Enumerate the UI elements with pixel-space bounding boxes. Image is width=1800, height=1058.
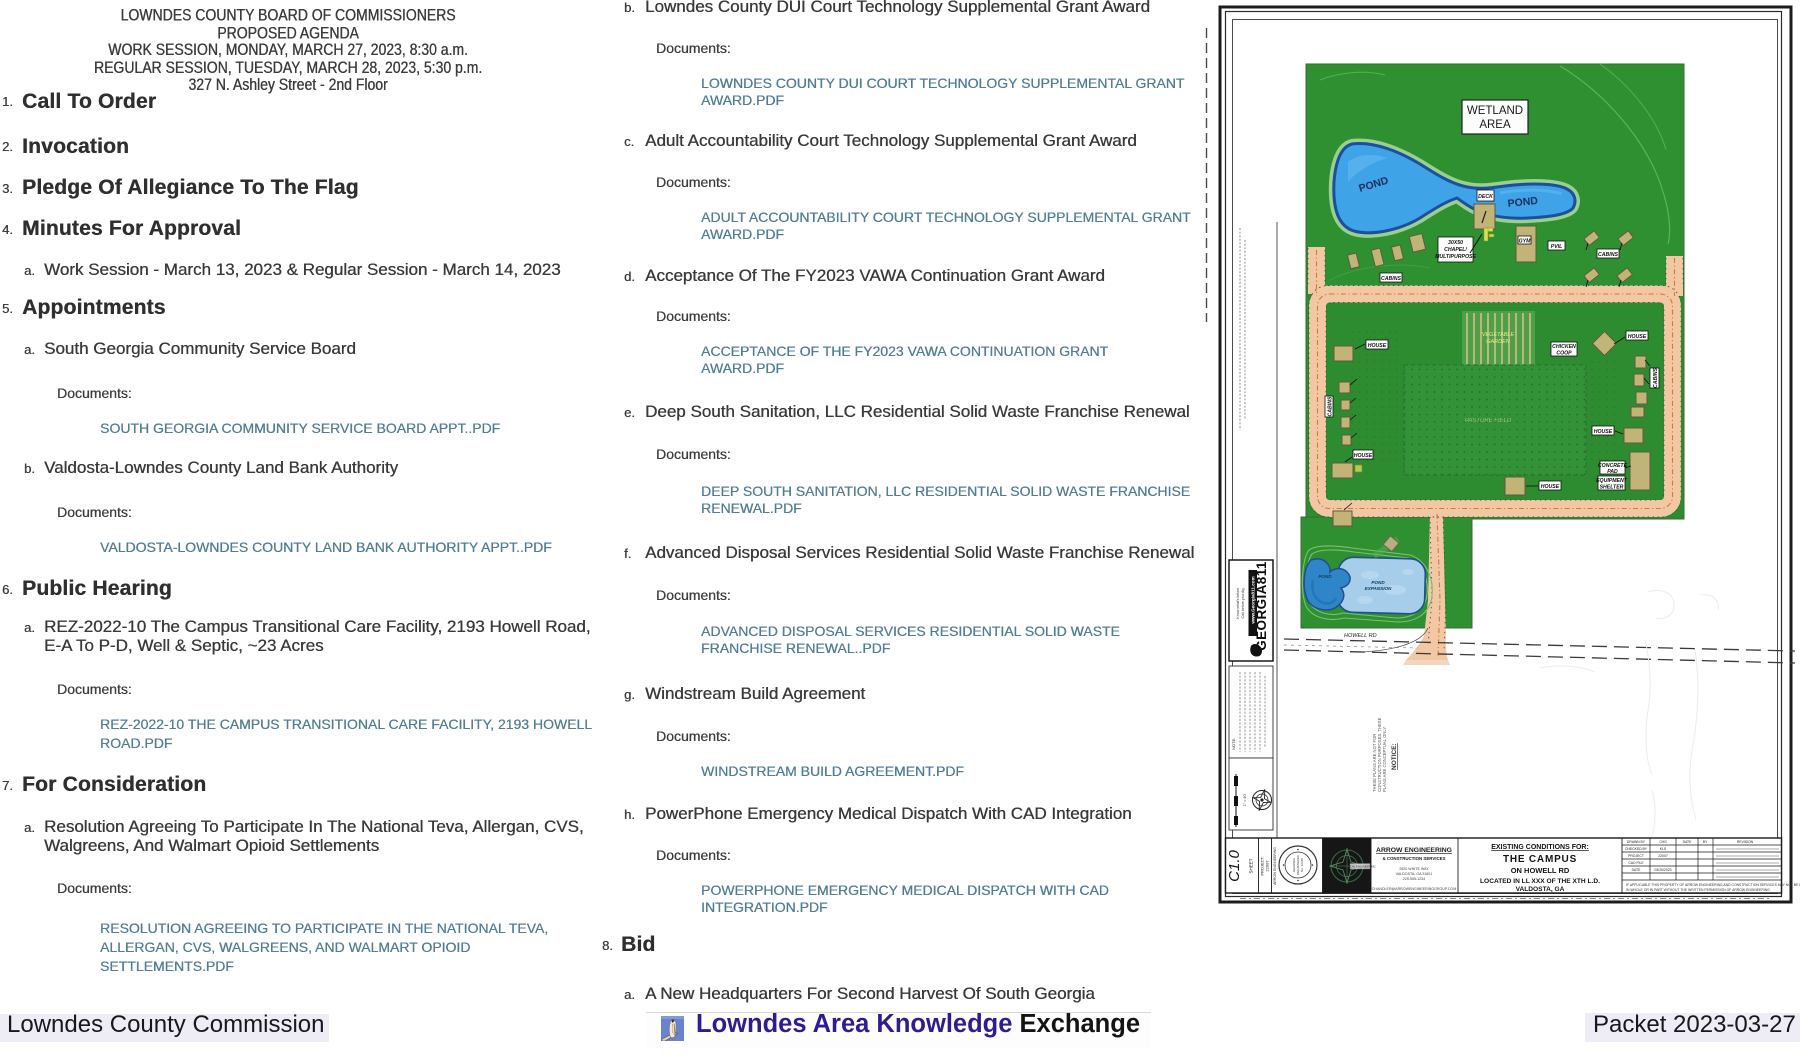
svg-text:THE CAMPUS: THE CAMPUS	[1503, 854, 1577, 865]
svg-text:VALDOSTA, GA 31601: VALDOSTA, GA 31601	[1396, 872, 1433, 876]
svg-text:HOUSE: HOUSE	[1354, 453, 1373, 459]
svg-text:ARROW ENGINEERING: ARROW ENGINEERING	[1273, 847, 1277, 885]
svg-text:VEGETABLE: VEGETABLE	[1482, 332, 1515, 338]
svg-text:22007: 22007	[1658, 854, 1668, 858]
svg-text:CAD FILE: CAD FILE	[1628, 861, 1644, 865]
svg-text:IN WHOLE OR IN PART WITHOUT TH: IN WHOLE OR IN PART WITHOUT THE WRITTEN …	[1626, 888, 1770, 892]
svg-text:EXPANSION: EXPANSION	[1365, 586, 1392, 591]
svg-text:SHELTER: SHELTER	[1600, 485, 1624, 491]
svg-text:CHANDLER@ARROWENGINEERINGGROUP: CHANDLER@ARROWENGINEERINGGROUP.COM	[1372, 887, 1456, 891]
svg-text:www.Georgia811.com: www.Georgia811.com	[1251, 576, 1256, 624]
svg-text:EXISTING CONDITIONS FOR:: EXISTING CONDITIONS FOR:	[1491, 844, 1589, 851]
svg-text:ARROW ENGINEERING: ARROW ENGINEERING	[1376, 847, 1452, 854]
svg-text:AREA: AREA	[1479, 119, 1511, 131]
svg-text:VALDOSTA, GA: VALDOSTA, GA	[1516, 886, 1565, 893]
svg-text:DECK: DECK	[1478, 194, 1494, 200]
svg-text:PAD: PAD	[1607, 469, 1618, 475]
svg-text:WETLAND: WETLAND	[1467, 105, 1523, 117]
svg-text:ON HOWELL RD: ON HOWELL RD	[1511, 866, 1570, 875]
svg-text:Know what's below.: Know what's below.	[1236, 587, 1240, 618]
svg-text:LOCATED IN LL XXX OF THE XTH L: LOCATED IN LL XXX OF THE XTH L.D.	[1480, 878, 1600, 885]
svg-text:SHEET: SHEET	[1249, 858, 1254, 873]
svg-text:229-555-1234: 229-555-1234	[1403, 877, 1425, 881]
svg-text:30X50: 30X50	[1448, 240, 1463, 246]
svg-text:CABINS: CABINS	[1598, 252, 1618, 258]
svg-text:CABINS: CABINS	[1381, 276, 1401, 282]
svg-text:ARROW ENGINEERING: ARROW ENGINEERING	[1344, 865, 1375, 869]
svg-text:HOUSE: HOUSE	[1368, 343, 1387, 349]
svg-text:CHG: CHG	[1659, 840, 1667, 844]
svg-text:22007: 22007	[1265, 860, 1270, 872]
svg-text:NOTE:: NOTE:	[1231, 738, 1236, 750]
svg-text:1" = 40': 1" = 40'	[1243, 793, 1247, 806]
svg-text:COOP: COOP	[1556, 351, 1572, 357]
svg-text:GYM: GYM	[1519, 239, 1531, 245]
svg-text:PVIL: PVIL	[1551, 244, 1563, 250]
svg-text:EQUIPMENT: EQUIPMENT	[1596, 478, 1628, 484]
svg-text:DATE: DATE	[1683, 840, 1693, 844]
svg-text:GARDEN: GARDEN	[1486, 339, 1510, 345]
svg-text:& CONSTRUCTION SERVICES: & CONSTRUCTION SERVICES	[1382, 856, 1445, 861]
svg-text:HOUSE: HOUSE	[1628, 334, 1647, 340]
svg-text:C1.0: C1.0	[1226, 850, 1243, 882]
svg-text:NOTICE:: NOTICE:	[1391, 743, 1398, 770]
svg-text:03/20/2023: 03/20/2023	[1655, 868, 1672, 872]
svg-text:HOWELL RD: HOWELL RD	[1344, 633, 1377, 639]
svg-text:HOUSE: HOUSE	[1594, 429, 1613, 435]
svg-text:DATE: DATE	[1632, 868, 1642, 872]
svg-text:MULTIPURPOSE: MULTIPURPOSE	[1435, 254, 1476, 260]
svg-text:IF APPLICABLE THIS PROPERTY OF: IF APPLICABLE THIS PROPERTY OF ARROW ENG…	[1626, 883, 1800, 887]
svg-text:PASTURE FIELD: PASTURE FIELD	[1465, 418, 1512, 424]
svg-text:CHICKEN: CHICKEN	[1552, 344, 1576, 350]
svg-text:CABINS: CABINS	[1327, 396, 1333, 416]
svg-text:POND: POND	[1371, 580, 1385, 585]
svg-text:CABINS: CABINS	[1653, 368, 1659, 388]
svg-text:CHAPEL/: CHAPEL/	[1444, 247, 1467, 253]
svg-text:DRAWN BY: DRAWN BY	[1627, 840, 1646, 844]
svg-text:HOUSE: HOUSE	[1541, 484, 1560, 490]
svg-text:KLS: KLS	[1660, 847, 1667, 851]
svg-text:PROJECT: PROJECT	[1628, 854, 1644, 858]
svg-text:Call before you dig.: Call before you dig.	[1241, 588, 1245, 619]
svg-text:2520 WHITE WAY: 2520 WHITE WAY	[1399, 867, 1429, 871]
svg-text:PLANS ARE CONCEPTUAL ONLY.: PLANS ARE CONCEPTUAL ONLY.	[1382, 726, 1387, 792]
svg-text:No. 12345: No. 12345	[1300, 858, 1304, 872]
svg-text:REVISION: REVISION	[1737, 840, 1754, 844]
svg-text:POND: POND	[1318, 574, 1332, 579]
svg-text:BY: BY	[1703, 840, 1708, 844]
svg-text:CHECKED BY: CHECKED BY	[1625, 847, 1648, 851]
